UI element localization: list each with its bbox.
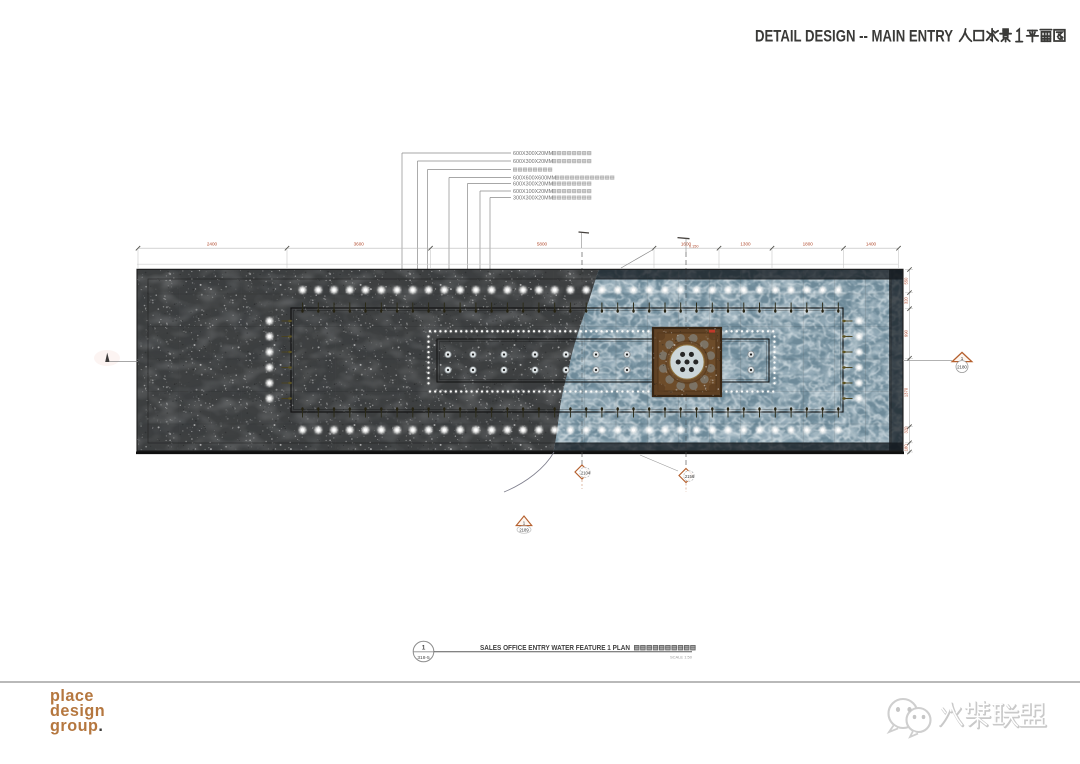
svg-text:1370: 1370 — [903, 387, 908, 397]
svg-text:600X100X20MM: 600X100X20MM — [513, 189, 554, 195]
svg-text:2180: 2180 — [957, 364, 967, 369]
svg-text:600X300X20MM: 600X300X20MM — [513, 159, 554, 165]
svg-text:600X300X20MM: 600X300X20MM — [513, 182, 554, 188]
svg-text:1300: 1300 — [740, 242, 751, 247]
svg-text:SCALE 1:50: SCALE 1:50 — [670, 655, 693, 660]
svg-text:2189: 2189 — [519, 528, 529, 533]
svg-text:990: 990 — [903, 329, 908, 337]
svg-text:320: 320 — [903, 426, 908, 434]
svg-text:2400: 2400 — [207, 242, 218, 247]
svg-text:0.150: 0.150 — [689, 245, 699, 249]
svg-text:1400: 1400 — [866, 242, 877, 247]
svg-text:SALES OFFICE ENTRY WATER FEATU: SALES OFFICE ENTRY WATER FEATURE 1 PLAN — [480, 643, 630, 652]
svg-text:2104: 2104 — [581, 470, 591, 475]
svg-text:5800: 5800 — [537, 242, 548, 247]
svg-text:550: 550 — [903, 277, 908, 285]
svg-text:180: 180 — [903, 444, 908, 452]
svg-text:320: 320 — [903, 296, 908, 304]
svg-text:3600: 3600 — [354, 242, 365, 247]
svg-text:1: 1 — [422, 645, 426, 652]
svg-text:300X300X20MM: 300X300X20MM — [513, 196, 554, 202]
svg-text:600X300X20MM: 600X300X20MM — [513, 151, 554, 157]
svg-text:2156: 2156 — [685, 474, 695, 479]
svg-text:1800: 1800 — [803, 242, 814, 247]
svg-text:DETAIL DESIGN -- MAIN ENTRY: DETAIL DESIGN -- MAIN ENTRY — [755, 27, 954, 46]
svg-text:318-5: 318-5 — [417, 655, 430, 661]
